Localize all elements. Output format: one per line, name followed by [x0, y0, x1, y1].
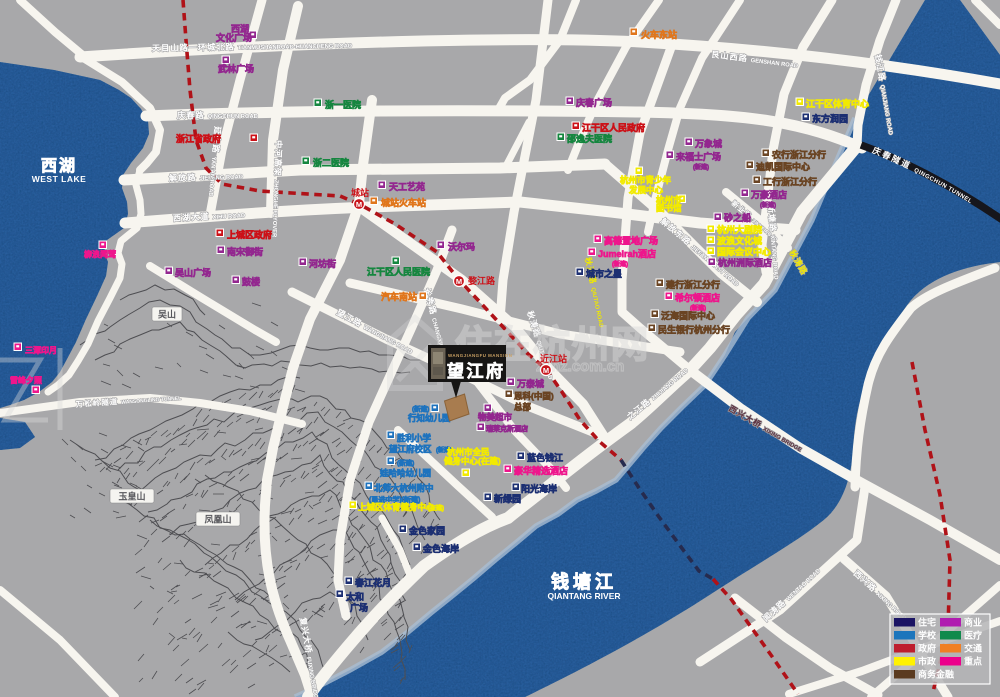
svg-text:吴山: 吴山: [158, 309, 176, 320]
svg-text:上城区体育健身中心: 上城区体育健身中心: [358, 502, 435, 512]
svg-text:火车东站: 火车东站: [641, 29, 677, 40]
svg-text:江干区人民医院: 江干区人民医院: [367, 266, 430, 277]
svg-text:近江站: 近江站: [540, 353, 567, 364]
svg-text:希尔顿酒店: 希尔顿酒店: [675, 292, 720, 303]
svg-text:(新建): (新建): [612, 260, 628, 268]
svg-text:胜利小学: 胜利小学: [396, 433, 432, 443]
svg-text:农行浙江分行: 农行浙江分行: [771, 149, 826, 160]
svg-text:河坊街: 河坊街: [309, 258, 336, 269]
svg-text:玉皇山: 玉皇山: [118, 491, 145, 502]
svg-text:新绿园: 新绿园: [494, 493, 521, 504]
svg-text:上城区政府: 上城区政府: [227, 229, 272, 240]
svg-text:庆春路: 庆春路: [176, 110, 205, 120]
svg-text:发展中心: 发展中心: [628, 185, 664, 195]
svg-text:江干区人民政府: 江干区人民政府: [582, 122, 645, 133]
svg-text:城市之星: 城市之星: [586, 268, 622, 279]
svg-text:天工艺苑: 天工艺苑: [389, 181, 425, 192]
svg-text:凤凰山: 凤凰山: [204, 514, 231, 525]
svg-text:波浪文化城: 波浪文化城: [717, 235, 762, 246]
svg-text:健身中心(在建): 健身中心(在建): [444, 456, 501, 466]
svg-text:(新建): (新建): [760, 201, 776, 209]
svg-text:北师大杭州附中: 北师大杭州附中: [374, 483, 434, 493]
svg-text:QINGCHUN ROAD: QINGCHUN ROAD: [208, 114, 258, 120]
svg-text:蓝色钱江: 蓝色钱江: [527, 452, 563, 463]
svg-text:(新建): (新建): [412, 404, 429, 413]
svg-text:南宋御街: 南宋御街: [227, 246, 263, 257]
svg-text:瑞莱克斯酒店: 瑞莱克斯酒店: [486, 424, 528, 433]
svg-text:望江府校区: 望江府校区: [389, 444, 432, 454]
svg-text:(新建): (新建): [693, 163, 709, 171]
svg-text:浙一医院: 浙一医院: [325, 99, 361, 110]
svg-text:杭州市青少年: 杭州市青少年: [620, 175, 672, 185]
svg-text:(在建): (在建): [428, 504, 444, 512]
svg-text:西湖大道: 西湖大道: [173, 211, 210, 223]
svg-text:交通: 交通: [964, 643, 982, 654]
svg-text:万象城: 万象城: [694, 138, 722, 149]
svg-text:WEST LAKE: WEST LAKE: [32, 174, 87, 184]
svg-text:来福士广场: 来福士广场: [675, 151, 721, 162]
svg-text:重点: 重点: [964, 656, 982, 667]
svg-text:春江花月: 春江花月: [354, 577, 391, 588]
svg-text:江干区体育中心: 江干区体育中心: [806, 98, 869, 109]
svg-text:商务金融: 商务金融: [918, 669, 954, 680]
svg-text:邵逸夫医院: 邵逸夫医院: [566, 133, 612, 144]
svg-text:望江府: 望江府: [447, 361, 506, 381]
svg-text:中河高架: 中河高架: [273, 140, 284, 177]
svg-text:豪华精选酒店: 豪华精选酒店: [514, 465, 568, 476]
svg-text:广场: 广场: [350, 602, 368, 613]
svg-text:政府: 政府: [918, 643, 936, 654]
svg-text:泛海国际中心: 泛海国际中心: [661, 310, 715, 321]
svg-text:M: M: [543, 366, 549, 375]
svg-text:金色家园: 金色家园: [408, 525, 445, 536]
svg-text:金色海岸: 金色海岸: [422, 543, 459, 554]
svg-text:总部: 总部: [514, 402, 532, 412]
svg-text:庆春广场: 庆春广场: [575, 97, 612, 108]
svg-text:Jumeirah酒店: Jumeirah酒店: [598, 248, 656, 259]
svg-text:吴山广场: 吴山广场: [175, 267, 211, 278]
svg-text:鼓楼: 鼓楼: [242, 276, 260, 287]
svg-text:WANGJIANGFU MANSION: WANGJIANGFU MANSION: [448, 353, 512, 358]
svg-text:万泰城: 万泰城: [516, 378, 544, 389]
svg-text:民生银行杭州分行: 民生银行杭州分行: [658, 324, 730, 335]
svg-text:住宅: 住宅: [918, 617, 936, 628]
svg-text:汽车南站: 汽车南站: [381, 291, 417, 302]
svg-text:砂之船: 砂之船: [724, 212, 751, 223]
svg-text:阳光海岸: 阳光海岸: [521, 483, 557, 494]
svg-text:高德置地广场: 高德置地广场: [604, 235, 658, 246]
svg-text:沃尔玛: 沃尔玛: [448, 241, 475, 252]
svg-text:东方润园: 东方润园: [812, 113, 848, 124]
svg-text:婺江路: 婺江路: [468, 275, 496, 286]
svg-text:QIANTANG RIVER: QIANTANG RIVER: [547, 591, 620, 601]
svg-text:M: M: [456, 277, 462, 286]
svg-text:天目山路一环城北路: 天目山路一环城北路: [152, 42, 235, 53]
svg-text:杭州洲际酒店: 杭州洲际酒店: [718, 257, 772, 268]
svg-text:M: M: [356, 200, 362, 209]
svg-text:娃哈哈幼儿园: 娃哈哈幼儿园: [379, 468, 431, 478]
svg-text:学校: 学校: [918, 630, 937, 641]
svg-text:柳浪闻莺: 柳浪闻莺: [84, 249, 116, 259]
svg-text:城站: 城站: [351, 187, 369, 198]
svg-text:(新建): (新建): [397, 458, 414, 467]
svg-text:城站火车站: 城站火车站: [381, 197, 426, 208]
svg-text:建行浙江分行: 建行浙江分行: [666, 279, 720, 290]
svg-text:国际会议中心: 国际会议中心: [717, 246, 771, 257]
svg-text:迪凯国际中心: 迪凯国际中心: [756, 161, 810, 172]
svg-text:太和: 太和: [345, 591, 364, 602]
svg-text:医疗: 医疗: [964, 630, 982, 641]
svg-text:行知幼儿园: 行知幼儿园: [407, 413, 451, 423]
svg-text:图书馆: 图书馆: [656, 203, 682, 213]
svg-text:商业: 商业: [964, 617, 982, 628]
svg-text:雷峰夕照: 雷峰夕照: [10, 375, 42, 385]
svg-text:浙江省政府: 浙江省政府: [176, 133, 221, 144]
svg-text:浙二医院: 浙二医院: [313, 157, 349, 168]
svg-text:武林广场: 武林广场: [218, 63, 254, 74]
svg-text:工行浙江分行: 工行浙江分行: [763, 176, 817, 187]
svg-text:万豪酒店: 万豪酒店: [750, 189, 787, 200]
svg-text:物美超市: 物美超市: [478, 412, 513, 422]
svg-text:市政: 市政: [918, 656, 937, 667]
svg-text:文化广场: 文化广场: [215, 32, 252, 43]
svg-text:三潭印月: 三潭印月: [25, 345, 57, 355]
svg-text:杭州大剧院: 杭州大剧院: [717, 224, 762, 235]
svg-text:解放路: 解放路: [169, 172, 197, 183]
svg-text:钱塘江: 钱塘江: [551, 571, 617, 592]
svg-text:西湖: 西湖: [41, 157, 77, 175]
svg-text:思科(中国): 思科(中国): [514, 391, 554, 401]
